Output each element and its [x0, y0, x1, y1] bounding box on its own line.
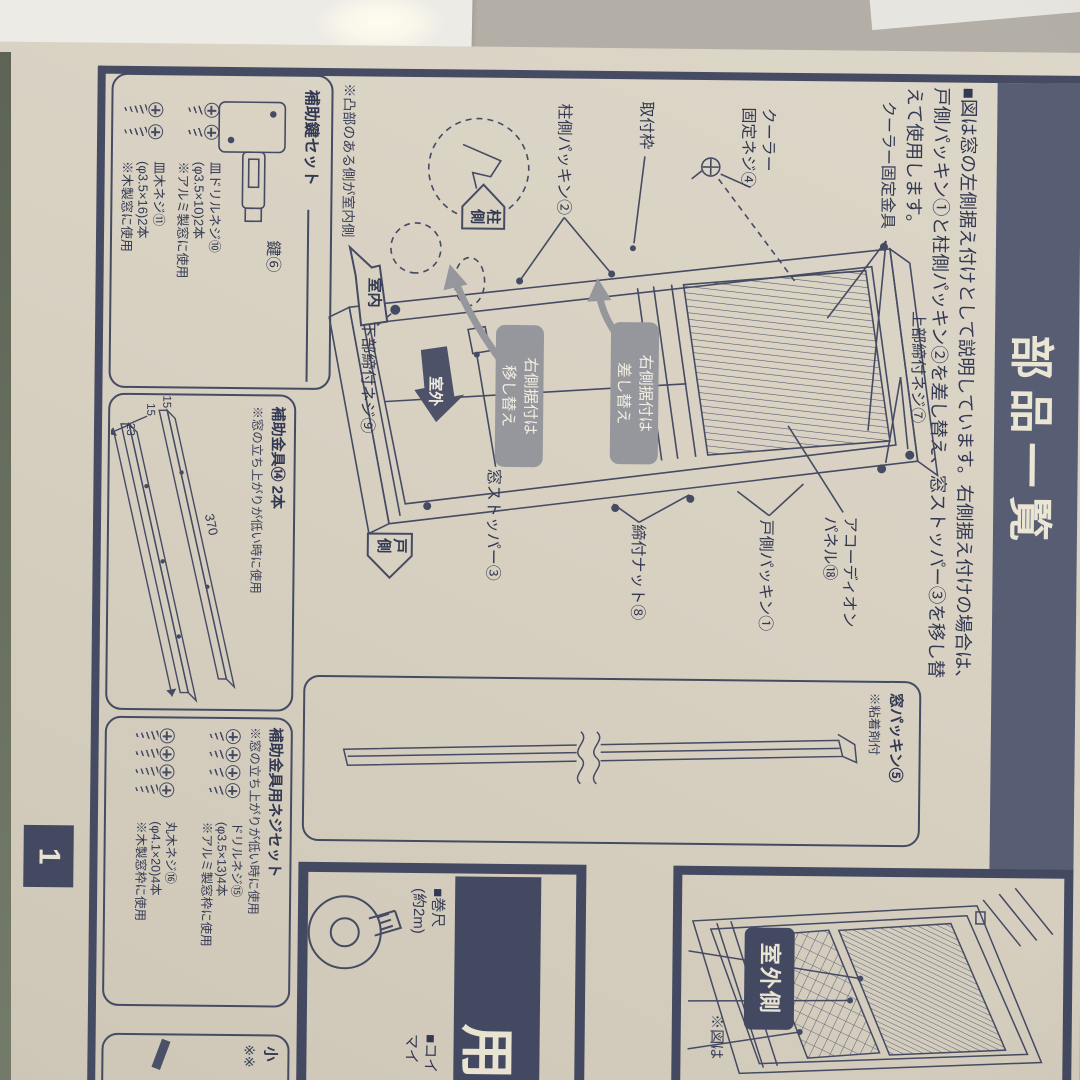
part-note: ※アルミ製窓に使用 [174, 161, 191, 278]
outdoor-note-partial: ※図は [706, 1014, 727, 1059]
badge-line: 右側据付は [518, 325, 541, 467]
screw-icon [196, 764, 240, 782]
item-line: マイ [401, 1034, 420, 1073]
screw-icon [119, 123, 163, 141]
screw-icons [125, 727, 175, 800]
partial-box-marks: ※※ [240, 1044, 257, 1068]
badge-line: 右側据付は [633, 322, 656, 464]
label-accordion-panel: アコーディオン パネル⑱ [818, 516, 859, 627]
screw-icon [175, 124, 219, 142]
prepare-item-tape: ■巻尺 (約2m) [409, 888, 447, 934]
outdoor-window-illustration [684, 881, 1061, 1080]
badge-line: 移し替え [496, 325, 519, 467]
table-edge-strip [0, 52, 11, 1080]
label-line: パネル⑱ [818, 516, 839, 627]
label-line: アコーディオン [838, 516, 859, 627]
screw-icon [119, 101, 163, 119]
part-name: 皿木ネジ⑪ [150, 161, 167, 252]
lock-box-note-above: ※凸部のある側が室内側 [338, 83, 360, 237]
part-name: 皿ドリルネジ⑩ [206, 162, 223, 279]
outdoor-side-text: 室外側 [757, 943, 783, 1015]
arrow-label-indoor: 室内 [365, 277, 381, 307]
prepare-header-text: 用 [450, 1023, 532, 1080]
window-packing-note: ※粘着剤付 [866, 693, 886, 756]
bracket-bars-drawing [108, 396, 251, 707]
screw-icons [191, 728, 241, 801]
aux-screwset-note: ※窓の立ち上がりが低い時に使用 [245, 727, 266, 915]
lock-screw2-text: 皿木ネジ⑪ (φ3.5×16)2本 ※木製窓に使用 [118, 161, 167, 253]
badge-line: 差し替え [611, 322, 634, 464]
label-line: 固定ネジ④ [737, 107, 758, 187]
dim-15a: 15 [158, 395, 174, 408]
arrow-label-door-side: 戸側 [375, 537, 407, 555]
manual-page: 部品一覧 ■図は窓の左側据え付けとして説明しています。右側据え付けの場合は、 戸… [0, 41, 1080, 1080]
label-door-packing: 戸側パッキン① [754, 520, 775, 632]
screw-icon [131, 727, 175, 745]
label-pillar-packing: 柱側パッキン② [552, 103, 573, 215]
badge-right-install-swap: 右側据付は 差し替え [610, 322, 659, 464]
screw-icon [197, 728, 241, 746]
page-number-box: 1 [23, 825, 74, 888]
screw-icon [197, 746, 241, 764]
part-size: (φ3.5×16)2本 [134, 161, 151, 252]
part-size: (φ3.5×13)4本 [213, 822, 229, 947]
screw-icon [175, 101, 219, 119]
screw-icon [196, 782, 240, 800]
screw-icons [114, 101, 163, 142]
set-screw2-text: 丸木ネジ⑯ (φ4.1×20)4本 ※木製窓枠に使用 [132, 821, 178, 921]
part-size: (φ3.5×10)2本 [190, 162, 207, 279]
part-size: (φ4.1×20)4本 [147, 821, 163, 921]
page-title: 部品一覧 [1001, 334, 1068, 551]
label-cooler-bracket: クーラー固定金具 [876, 101, 897, 229]
part-note: ※アルミ製窓枠に使用 [198, 822, 214, 947]
part-note: ※木製窓枠に使用 [132, 821, 148, 921]
aux-lock-title: 補助鍵セット [301, 90, 326, 186]
screw-icon [131, 745, 175, 763]
screw-icon [130, 763, 174, 781]
aux-bracket-title: 補助金具⑭ 2本 [267, 406, 289, 509]
label-window-stopper: 窓ストッパー③ [481, 469, 502, 581]
key-label: 鍵⑥ [262, 240, 282, 272]
dim-23: 23 [122, 423, 138, 436]
part-name: 丸木ネジ⑯ [162, 821, 178, 921]
badge-right-install-move: 右側据付は 移し替え [495, 325, 544, 467]
part-note: ※木製窓に使用 [118, 161, 135, 252]
page-number: 1 [32, 848, 65, 865]
screw-icons [170, 101, 219, 142]
partial-box-char: 小 [260, 1046, 281, 1061]
item-line: (約2m) [409, 888, 428, 934]
arrow-label-outdoor: 室外 [426, 376, 442, 406]
label-cooler-screw: クーラー 固定ネジ④ [737, 107, 778, 187]
prepare-item-driver-partial: ■コイ マイ [401, 1034, 439, 1073]
background-paper-corner [869, 0, 1080, 30]
window-packing-label: 窓パッキン⑤ [885, 693, 907, 783]
screw-icon [130, 781, 174, 799]
label-mounting-frame: 取付枠 [635, 101, 656, 149]
label-tightening-nut: 締付ナット⑧ [626, 524, 647, 620]
part-name: ドリルネジ⑮ [228, 822, 244, 947]
label-lower-screw: 下部締付ネジ⑨ [356, 321, 377, 433]
aux-screwset-title: 補助金具用ネジセット [264, 727, 287, 877]
arrow-label-pillar-side: 柱側 [468, 207, 500, 225]
lock-screw1-text: 皿ドリルネジ⑩ (φ3.5×10)2本 ※アルミ製窓に使用 [174, 161, 223, 278]
photo-of-manual-page: 部品一覧 ■図は窓の左側据え付けとして説明しています。右側据え付けの場合は、 戸… [0, 0, 1080, 1080]
label-line: クーラー [757, 108, 778, 188]
window-packing-strip [310, 677, 864, 845]
item-line: ■巻尺 [428, 888, 447, 934]
set-screw1-text: ドリルネジ⑮ (φ3.5×13)4本 ※アルミ製窓枠に使用 [198, 822, 244, 947]
outdoor-side-label: 室外側 [744, 927, 795, 1030]
tape-measure-icon [304, 880, 405, 986]
label-upper-screw: 上部締付ネジ⑦ [906, 311, 927, 423]
item-line: ■コイ [420, 1034, 439, 1073]
dim-15b: 15 [142, 403, 158, 416]
lock-key-drawing [210, 96, 295, 229]
